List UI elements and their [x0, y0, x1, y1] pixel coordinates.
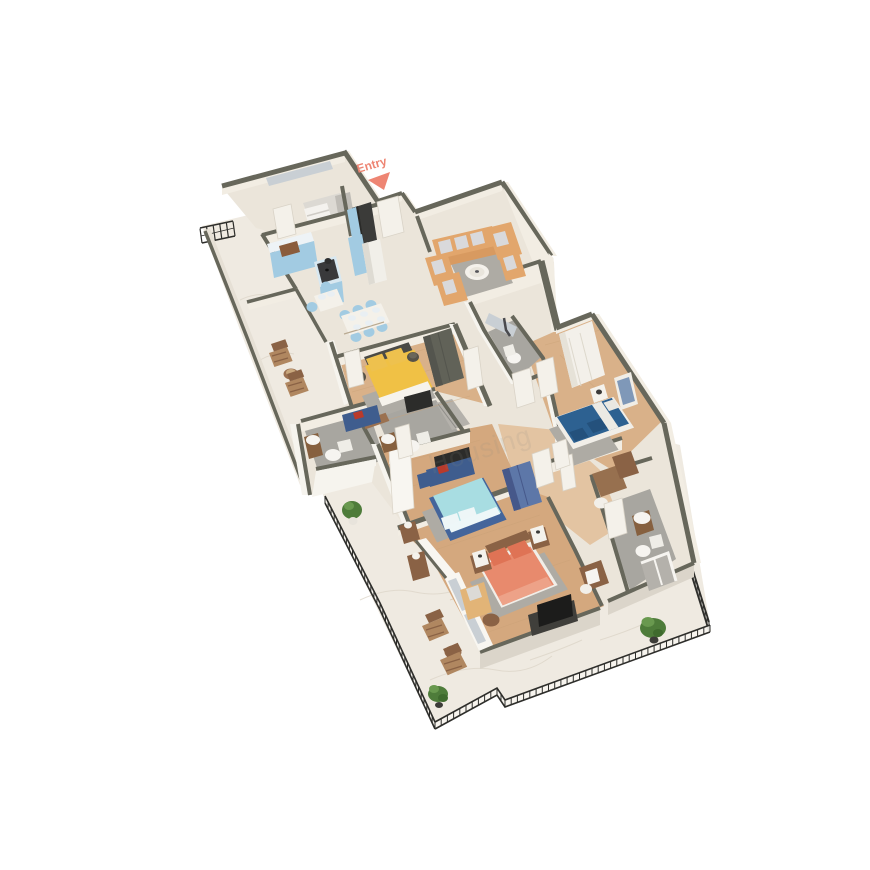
svg-text:Entry: Entry [355, 154, 389, 176]
